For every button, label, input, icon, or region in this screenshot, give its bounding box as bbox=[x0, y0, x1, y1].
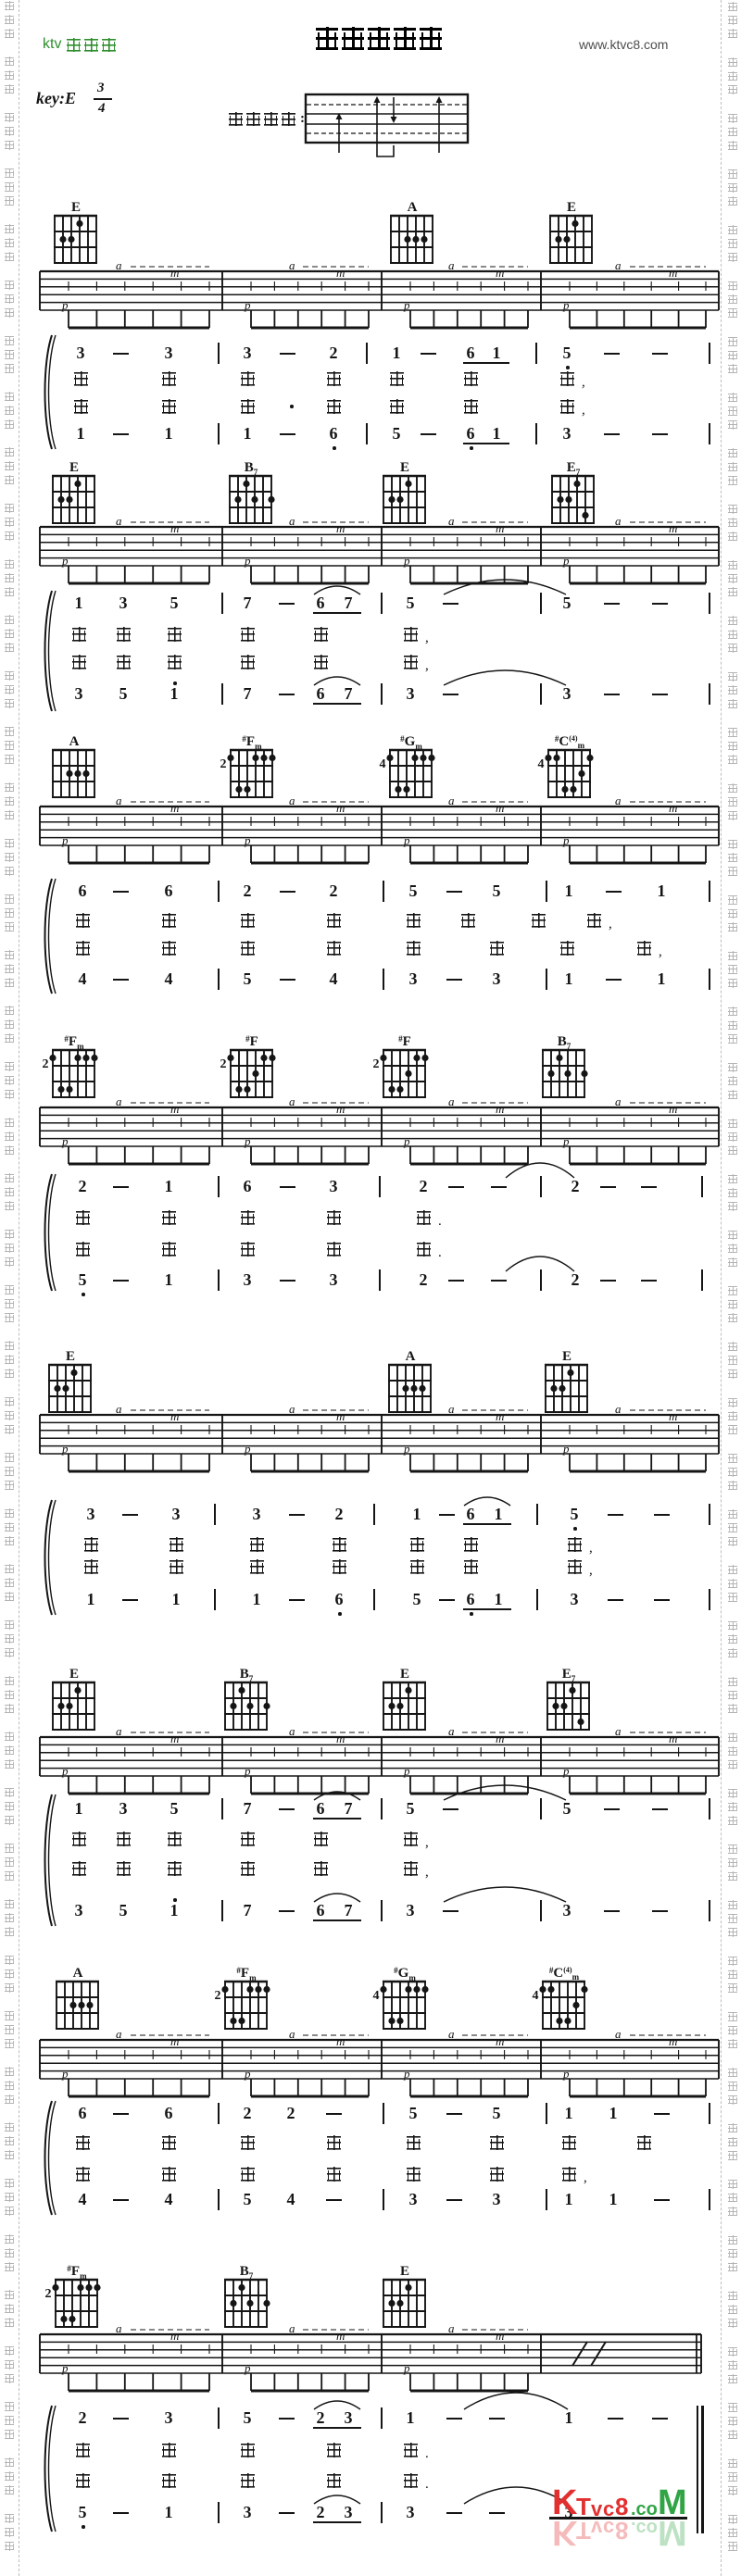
svg-text:a: a bbox=[615, 1402, 622, 1416]
svg-text:m: m bbox=[496, 266, 504, 280]
svg-text:p: p bbox=[403, 554, 410, 568]
svg-text:E: E bbox=[69, 460, 79, 475]
svg-text:E: E bbox=[400, 460, 409, 475]
svg-text:p: p bbox=[61, 2361, 69, 2375]
svg-text:#Fm: #Fm bbox=[236, 1966, 257, 1982]
svg-text:A: A bbox=[73, 1966, 83, 1981]
svg-text:#C(4)m: #C(4)m bbox=[555, 734, 585, 750]
svg-text:p: p bbox=[61, 1442, 69, 1456]
svg-text:m: m bbox=[669, 1102, 677, 1116]
svg-text:E: E bbox=[562, 1349, 571, 1364]
svg-text:p: p bbox=[403, 298, 410, 312]
svg-text:p: p bbox=[61, 1764, 69, 1778]
svg-text:p: p bbox=[61, 1134, 69, 1148]
svg-text:a: a bbox=[289, 1724, 295, 1738]
svg-text:p: p bbox=[244, 554, 251, 568]
svg-text:#Fm: #Fm bbox=[67, 2264, 87, 2281]
svg-text:2: 2 bbox=[220, 1057, 227, 1071]
svg-text:#C(4)m: #C(4)m bbox=[549, 1966, 580, 1982]
svg-text:4: 4 bbox=[538, 757, 545, 771]
svg-text:m: m bbox=[496, 2034, 504, 2048]
svg-text:p: p bbox=[403, 833, 410, 847]
svg-text:p: p bbox=[61, 298, 69, 312]
svg-text:#Fm: #Fm bbox=[242, 734, 262, 751]
svg-text:a: a bbox=[615, 514, 622, 528]
svg-text:m: m bbox=[336, 1409, 345, 1423]
svg-text:a: a bbox=[448, 1402, 455, 1416]
svg-text:m: m bbox=[336, 521, 345, 535]
svg-text:m: m bbox=[669, 266, 677, 280]
svg-text:4: 4 bbox=[373, 1989, 380, 2003]
svg-text:m: m bbox=[496, 1102, 504, 1116]
svg-text:a: a bbox=[289, 1402, 295, 1416]
svg-text:p: p bbox=[403, 2067, 410, 2081]
svg-text:p: p bbox=[403, 1764, 410, 1778]
svg-text:m: m bbox=[669, 1409, 677, 1423]
svg-text:m: m bbox=[336, 2034, 345, 2048]
svg-text:a: a bbox=[615, 1724, 622, 1738]
svg-text:p: p bbox=[562, 1764, 570, 1778]
svg-text:p: p bbox=[244, 833, 251, 847]
svg-text:#Gm: #Gm bbox=[394, 1966, 416, 1982]
svg-text:p: p bbox=[61, 833, 69, 847]
svg-text:#Gm: #Gm bbox=[400, 734, 422, 751]
svg-text:p: p bbox=[244, 2361, 251, 2375]
svg-text:p: p bbox=[562, 298, 570, 312]
svg-text:2: 2 bbox=[373, 1057, 380, 1071]
svg-text:a: a bbox=[448, 794, 455, 807]
svg-text:4: 4 bbox=[380, 757, 386, 771]
svg-text:a: a bbox=[116, 2027, 122, 2041]
svg-text:B7: B7 bbox=[240, 2264, 254, 2281]
svg-text:p: p bbox=[244, 1764, 251, 1778]
svg-text:E: E bbox=[400, 1667, 409, 1682]
svg-text:a: a bbox=[448, 514, 455, 528]
svg-text:a: a bbox=[116, 514, 122, 528]
svg-text:A: A bbox=[408, 200, 418, 215]
svg-text:p: p bbox=[61, 554, 69, 568]
svg-text:m: m bbox=[669, 2034, 677, 2048]
svg-text:a: a bbox=[116, 1094, 122, 1108]
svg-text:E: E bbox=[400, 2264, 409, 2279]
svg-text:a: a bbox=[289, 514, 295, 528]
svg-text:B7: B7 bbox=[240, 1667, 254, 1683]
svg-text:m: m bbox=[170, 266, 179, 280]
svg-text:m: m bbox=[336, 2329, 345, 2343]
svg-text:A: A bbox=[69, 734, 80, 749]
svg-text:#F: #F bbox=[398, 1034, 411, 1049]
svg-text:p: p bbox=[244, 1134, 251, 1148]
svg-text:m: m bbox=[336, 1102, 345, 1116]
svg-text:a: a bbox=[116, 258, 122, 272]
svg-text:p: p bbox=[403, 1442, 410, 1456]
svg-text:E7: E7 bbox=[562, 1667, 576, 1683]
svg-text:p: p bbox=[562, 554, 570, 568]
svg-text:m: m bbox=[170, 2034, 179, 2048]
svg-text:#F: #F bbox=[245, 1034, 258, 1049]
svg-text:a: a bbox=[289, 1094, 295, 1108]
svg-text:p: p bbox=[61, 2067, 69, 2081]
svg-text:p: p bbox=[244, 298, 251, 312]
svg-text:p: p bbox=[562, 2067, 570, 2081]
svg-text:a: a bbox=[615, 794, 622, 807]
svg-text:m: m bbox=[170, 521, 179, 535]
svg-text:a: a bbox=[615, 258, 622, 272]
svg-text:E: E bbox=[66, 1349, 75, 1364]
svg-text:a: a bbox=[448, 2027, 455, 2041]
svg-text:a: a bbox=[116, 794, 122, 807]
svg-text:a: a bbox=[289, 2027, 295, 2041]
svg-text:p: p bbox=[562, 1442, 570, 1456]
svg-text:m: m bbox=[496, 1732, 504, 1745]
svg-text:m: m bbox=[170, 1732, 179, 1745]
svg-text:a: a bbox=[615, 2027, 622, 2041]
svg-text:p: p bbox=[403, 1134, 410, 1148]
svg-text:a: a bbox=[289, 794, 295, 807]
svg-text:E: E bbox=[567, 200, 576, 215]
svg-text:E: E bbox=[71, 200, 81, 215]
svg-text:m: m bbox=[336, 1732, 345, 1745]
svg-text:p: p bbox=[244, 1442, 251, 1456]
svg-text:a: a bbox=[116, 2321, 122, 2335]
svg-text:m: m bbox=[669, 521, 677, 535]
svg-text:m: m bbox=[669, 1732, 677, 1745]
svg-text:m: m bbox=[496, 2329, 504, 2343]
svg-text:p: p bbox=[403, 2361, 410, 2375]
svg-text:m: m bbox=[170, 1102, 179, 1116]
svg-text:m: m bbox=[496, 1409, 504, 1423]
svg-text:m: m bbox=[336, 266, 345, 280]
svg-text:m: m bbox=[336, 801, 345, 815]
svg-text:B7: B7 bbox=[558, 1034, 571, 1051]
svg-text:a: a bbox=[116, 1402, 122, 1416]
svg-text:2: 2 bbox=[43, 1057, 49, 1071]
svg-text:A: A bbox=[406, 1349, 416, 1364]
svg-text:a: a bbox=[448, 258, 455, 272]
svg-text:#Fm: #Fm bbox=[64, 1034, 84, 1051]
svg-text:a: a bbox=[615, 1094, 622, 1108]
svg-text:E7: E7 bbox=[567, 460, 581, 477]
svg-text:m: m bbox=[170, 801, 179, 815]
svg-text:m: m bbox=[496, 521, 504, 535]
svg-text:m: m bbox=[669, 801, 677, 815]
svg-text:E: E bbox=[69, 1667, 79, 1682]
svg-text:a: a bbox=[116, 1724, 122, 1738]
svg-text:a: a bbox=[448, 1724, 455, 1738]
svg-text:4: 4 bbox=[533, 1989, 539, 2003]
svg-text:m: m bbox=[170, 1409, 179, 1423]
svg-text:a: a bbox=[448, 1094, 455, 1108]
svg-text:m: m bbox=[170, 2329, 179, 2343]
svg-text:p: p bbox=[244, 2067, 251, 2081]
svg-text:B7: B7 bbox=[245, 460, 258, 477]
svg-text:2: 2 bbox=[220, 757, 227, 771]
svg-text:a: a bbox=[289, 2321, 295, 2335]
svg-text:2: 2 bbox=[45, 2287, 52, 2301]
svg-text:2: 2 bbox=[215, 1989, 221, 2003]
svg-text:p: p bbox=[562, 833, 570, 847]
svg-text:m: m bbox=[496, 801, 504, 815]
svg-text:p: p bbox=[562, 1134, 570, 1148]
svg-text:a: a bbox=[289, 258, 295, 272]
svg-text:a: a bbox=[448, 2321, 455, 2335]
